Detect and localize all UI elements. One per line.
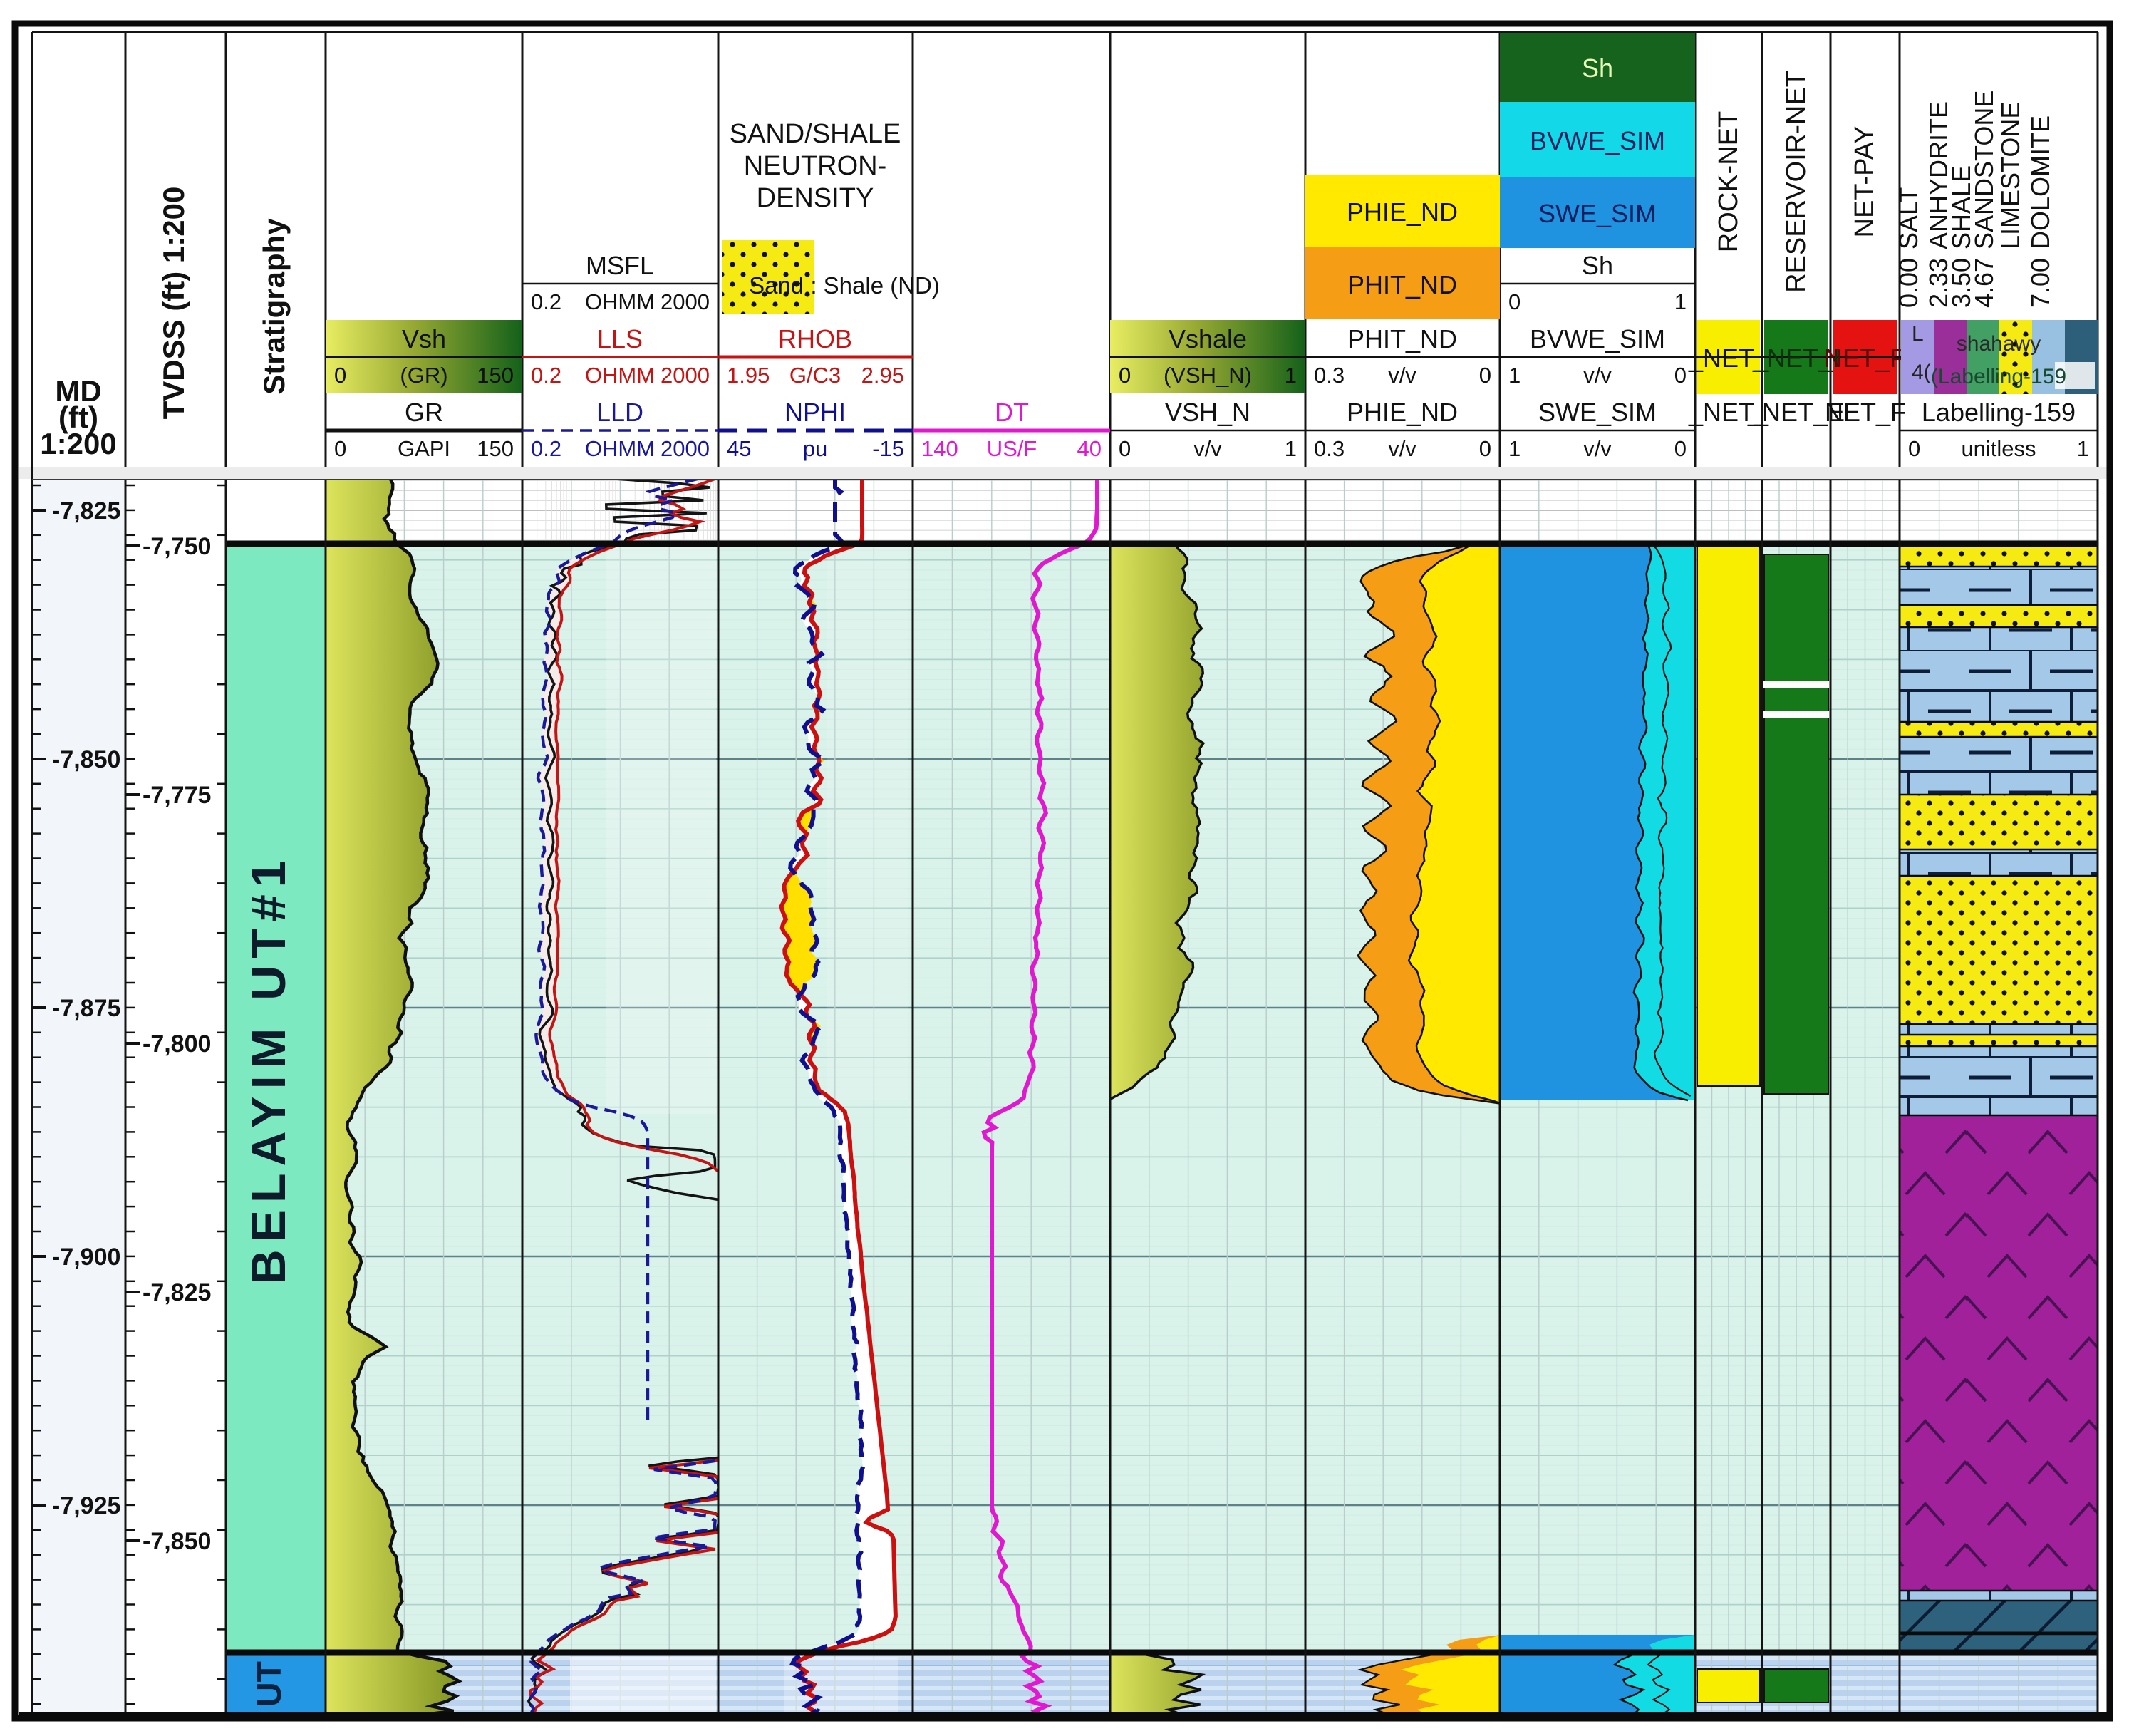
svg-text:DOLOMITE: DOLOMITE xyxy=(2026,115,2055,249)
svg-text:-7,750: -7,750 xyxy=(143,533,211,560)
svg-text:2000: 2000 xyxy=(661,436,710,461)
svg-text:0: 0 xyxy=(1508,289,1521,314)
svg-text:-7,925: -7,925 xyxy=(52,1492,120,1519)
svg-text:v/v: v/v xyxy=(1388,436,1416,461)
svg-text:0.2: 0.2 xyxy=(531,289,561,314)
svg-text:0: 0 xyxy=(1908,436,1920,461)
svg-text:LLS: LLS xyxy=(597,324,643,353)
svg-text:TVDSS (ft) 1:200: TVDSS (ft) 1:200 xyxy=(157,187,190,420)
svg-text:1: 1 xyxy=(1674,289,1687,314)
svg-text:0: 0 xyxy=(1119,436,1131,461)
svg-text:1: 1 xyxy=(2077,436,2089,461)
svg-text:v/v: v/v xyxy=(1388,363,1416,388)
svg-text:G/C3: G/C3 xyxy=(789,363,841,388)
svg-text:Vsh: Vsh xyxy=(402,324,446,353)
svg-text:OHMM: OHMM xyxy=(585,289,655,314)
svg-text:RHOB: RHOB xyxy=(778,324,852,353)
svg-text:0: 0 xyxy=(334,363,346,388)
svg-text:LIMESTONE: LIMESTONE xyxy=(1996,102,2025,249)
svg-text:Stratigraphy: Stratigraphy xyxy=(257,218,291,395)
svg-text:OHMM: OHMM xyxy=(585,363,655,388)
svg-text:-7,850: -7,850 xyxy=(52,746,120,773)
svg-text:0.3: 0.3 xyxy=(1314,363,1345,388)
svg-text:UT: UT xyxy=(251,1661,289,1707)
svg-text:-7,850: -7,850 xyxy=(143,1528,211,1555)
svg-text:unitless: unitless xyxy=(1961,436,2036,461)
svg-text:NET_F: NET_F xyxy=(1825,398,1906,427)
svg-text:1: 1 xyxy=(1508,436,1521,461)
svg-text:L: L xyxy=(1912,322,1924,346)
svg-text:2000: 2000 xyxy=(661,289,710,314)
svg-text:-7,875: -7,875 xyxy=(52,995,120,1022)
svg-text:PHIE_ND: PHIE_ND xyxy=(1347,398,1458,427)
svg-text:(GR): (GR) xyxy=(400,363,447,388)
svg-text:NET-PAY: NET-PAY xyxy=(1850,126,1880,238)
svg-text:0: 0 xyxy=(1479,363,1491,388)
svg-text:7.00: 7.00 xyxy=(2026,258,2055,308)
svg-text:4(: 4( xyxy=(1912,361,1931,384)
svg-text:NEUTRON-: NEUTRON- xyxy=(744,151,887,181)
svg-text:1:200: 1:200 xyxy=(40,427,116,460)
svg-text:1: 1 xyxy=(1508,363,1521,388)
svg-text:2.95: 2.95 xyxy=(861,363,904,388)
svg-text:Sh: Sh xyxy=(1582,251,1613,280)
svg-text:1: 1 xyxy=(1285,363,1297,388)
svg-text:SANDSTONE: SANDSTONE xyxy=(1969,91,1999,249)
svg-text:140: 140 xyxy=(921,436,958,461)
svg-text:BVWE_SIM: BVWE_SIM xyxy=(1530,324,1665,353)
svg-text:-7,900: -7,900 xyxy=(52,1244,120,1271)
svg-text:MSFL: MSFL xyxy=(586,251,654,280)
svg-text:(VSH_N): (VSH_N) xyxy=(1164,363,1252,388)
svg-text:NET_P: NET_P xyxy=(1824,343,1907,373)
svg-text:45: 45 xyxy=(727,436,751,461)
svg-text:GR: GR xyxy=(405,398,443,427)
svg-text:0.2: 0.2 xyxy=(531,363,561,388)
svg-text:ROCK-NET: ROCK-NET xyxy=(1714,111,1744,252)
svg-text:LLD: LLD xyxy=(596,398,643,427)
svg-text:DT: DT xyxy=(995,398,1029,427)
svg-text:(Labelling-159: (Labelling-159 xyxy=(1931,365,2066,388)
svg-text:PHIT_ND: PHIT_ND xyxy=(1347,324,1457,353)
svg-text:SWE_SIM: SWE_SIM xyxy=(1538,199,1657,228)
svg-text:SALT: SALT xyxy=(1894,187,1923,249)
svg-text:0: 0 xyxy=(1674,436,1687,461)
svg-text:150: 150 xyxy=(477,363,514,388)
svg-text:-7,825: -7,825 xyxy=(52,497,120,525)
svg-text:2000: 2000 xyxy=(661,363,710,388)
svg-text:0.3: 0.3 xyxy=(1314,436,1345,461)
svg-text:-7,800: -7,800 xyxy=(143,1030,211,1058)
svg-text:GAPI: GAPI xyxy=(398,436,450,461)
svg-text:0.00: 0.00 xyxy=(1894,258,1923,308)
svg-text:Labelling-159: Labelling-159 xyxy=(1922,398,2076,427)
svg-text:OHMM: OHMM xyxy=(585,436,655,461)
svg-text:40: 40 xyxy=(1077,436,1102,461)
svg-text:PHIT_ND: PHIT_ND xyxy=(1347,270,1457,299)
svg-text:VSH_N: VSH_N xyxy=(1165,398,1250,427)
svg-text:v/v: v/v xyxy=(1193,436,1222,461)
svg-text:shahawy: shahawy xyxy=(1957,332,2041,356)
svg-text:Vshale: Vshale xyxy=(1169,324,1247,353)
svg-text:1.95: 1.95 xyxy=(727,363,770,388)
svg-text:0: 0 xyxy=(334,436,346,461)
svg-text:BVWE_SIM: BVWE_SIM xyxy=(1530,126,1665,155)
svg-text:v/v: v/v xyxy=(1583,363,1612,388)
svg-text:SWE_SIM: SWE_SIM xyxy=(1538,398,1657,427)
svg-text:Sh: Sh xyxy=(1582,53,1613,83)
svg-text:DENSITY: DENSITY xyxy=(757,183,874,213)
svg-text:0: 0 xyxy=(1119,363,1131,388)
svg-text:Sand : Shale (ND): Sand : Shale (ND) xyxy=(749,272,940,299)
svg-text:PHIE_ND: PHIE_ND xyxy=(1347,197,1458,227)
svg-text:-7,775: -7,775 xyxy=(143,782,211,809)
svg-text:0.2: 0.2 xyxy=(531,436,561,461)
svg-text:0: 0 xyxy=(1674,363,1687,388)
svg-text:NPHI: NPHI xyxy=(784,398,846,427)
svg-text:-7,825: -7,825 xyxy=(143,1279,211,1306)
svg-text:-15: -15 xyxy=(872,436,904,461)
svg-text:RESERVOIR-NET: RESERVOIR-NET xyxy=(1781,71,1811,293)
svg-text:SAND/SHALE: SAND/SHALE xyxy=(730,119,901,149)
svg-text:pu: pu xyxy=(803,436,827,461)
svg-text:150: 150 xyxy=(477,436,514,461)
svg-text:1: 1 xyxy=(1285,436,1297,461)
svg-text:4.67: 4.67 xyxy=(1969,258,1999,308)
svg-text:US/F: US/F xyxy=(987,436,1037,461)
svg-text:v/v: v/v xyxy=(1583,436,1612,461)
svg-text:BELAYIM UT#1: BELAYIM UT#1 xyxy=(242,854,296,1285)
svg-text:0: 0 xyxy=(1479,436,1491,461)
